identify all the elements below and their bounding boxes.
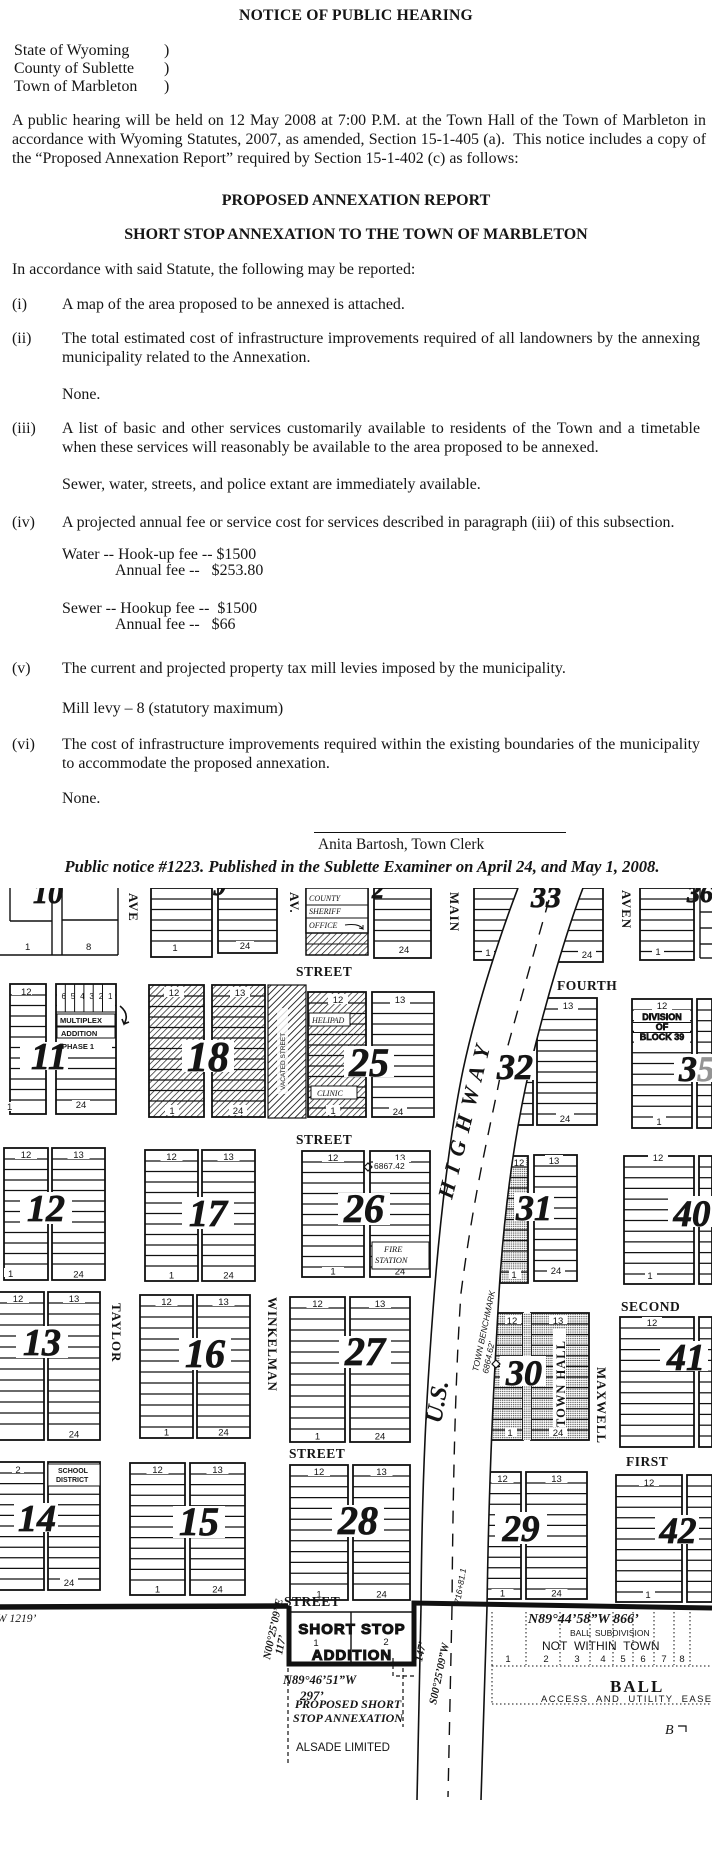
svg-text:13: 13	[23, 1322, 61, 1364]
svg-text:24: 24	[240, 941, 251, 952]
svg-text:1: 1	[315, 1432, 320, 1443]
svg-text:12: 12	[27, 1188, 65, 1230]
svg-text:1: 1	[500, 1589, 505, 1600]
svg-text:12: 12	[507, 1316, 518, 1327]
svg-text:1: 1	[172, 943, 177, 954]
svg-text:10: 10	[33, 888, 63, 910]
svg-text:COUNTY: COUNTY	[309, 894, 342, 903]
svg-text:SHORT STOP: SHORT STOP	[298, 1621, 405, 1638]
svg-text:MAIN: MAIN	[447, 892, 462, 932]
svg-text:1: 1	[108, 992, 113, 1001]
svg-text:24: 24	[218, 1428, 229, 1439]
svg-text:MAXWELL: MAXWELL	[594, 1367, 609, 1444]
svg-text:29: 29	[502, 1509, 540, 1550]
svg-text:12: 12	[644, 1478, 655, 1489]
svg-text:30: 30	[505, 1353, 542, 1393]
svg-text:13: 13	[563, 1001, 574, 1012]
svg-text:16: 16	[185, 1331, 225, 1376]
svg-text:SHERIFF: SHERIFF	[309, 907, 341, 916]
svg-text:FIRE: FIRE	[383, 1244, 403, 1254]
svg-text:24: 24	[76, 1100, 87, 1111]
svg-text:B: B	[665, 1723, 674, 1738]
svg-text:STREET: STREET	[296, 1132, 352, 1147]
svg-text:41: 41	[666, 1337, 705, 1379]
svg-text:13: 13	[69, 1294, 80, 1305]
svg-text:13: 13	[218, 1297, 229, 1308]
svg-text:CLINIC: CLINIC	[317, 1089, 343, 1098]
svg-text:OFFICE: OFFICE	[309, 921, 338, 930]
svg-text:DIVISION: DIVISION	[642, 1012, 682, 1022]
svg-text:27: 27	[344, 1329, 387, 1374]
svg-text:STREET: STREET	[296, 964, 352, 979]
svg-text:AV.: AV.	[287, 892, 302, 914]
svg-text:1: 1	[656, 1117, 661, 1128]
svg-text:13: 13	[395, 995, 406, 1006]
svg-text:FOURTH: FOURTH	[557, 978, 617, 993]
svg-text:8: 8	[86, 942, 91, 953]
svg-text:12: 12	[514, 1158, 525, 1169]
svg-text:DISTRICT: DISTRICT	[56, 1477, 89, 1484]
svg-text:6: 6	[640, 1654, 645, 1665]
svg-text:OF: OF	[656, 1022, 669, 1032]
svg-text:13: 13	[223, 1152, 234, 1163]
svg-text:24: 24	[212, 1585, 223, 1596]
svg-text:5: 5	[697, 1049, 712, 1089]
svg-text:24: 24	[73, 1270, 84, 1281]
svg-text:1: 1	[164, 1428, 169, 1439]
svg-text:AVE: AVE	[126, 893, 141, 922]
svg-text:1: 1	[511, 1270, 516, 1281]
svg-text:24: 24	[223, 1271, 234, 1282]
svg-text:N89°44’58”W 866’: N89°44’58”W 866’	[527, 1612, 639, 1627]
svg-text:24: 24	[376, 1590, 387, 1601]
svg-text:3: 3	[574, 1654, 579, 1665]
svg-text:3: 3	[89, 992, 94, 1001]
svg-text:12: 12	[21, 987, 32, 998]
svg-text:12: 12	[169, 988, 180, 999]
svg-text:6867.42: 6867.42	[374, 1161, 405, 1171]
svg-text:14: 14	[18, 1498, 56, 1540]
svg-text:AVEN: AVEN	[619, 890, 634, 929]
svg-text:13: 13	[376, 1467, 387, 1478]
svg-text:ACCESS AND UTILITY EASE: ACCESS AND UTILITY EASE	[541, 1694, 712, 1705]
svg-text:2: 2	[371, 888, 384, 904]
svg-text:7: 7	[661, 1654, 666, 1665]
svg-text:1: 1	[7, 1102, 12, 1113]
svg-text:12: 12	[653, 1153, 664, 1164]
svg-text:1: 1	[645, 1590, 650, 1601]
svg-text:17: 17	[189, 1193, 229, 1235]
svg-text:24: 24	[69, 1430, 80, 1441]
svg-text:12: 12	[152, 1465, 163, 1476]
svg-text:FIRST: FIRST	[626, 1454, 668, 1469]
svg-text:5: 5	[71, 992, 76, 1001]
svg-text:3: 3	[678, 1049, 697, 1089]
svg-text:24: 24	[551, 1266, 562, 1277]
svg-text:WINKELMAN: WINKELMAN	[265, 1297, 280, 1392]
svg-text:24: 24	[553, 1428, 564, 1439]
svg-text:4: 4	[80, 992, 85, 1001]
svg-text:5: 5	[620, 1654, 625, 1665]
svg-text:TOWN HALL: TOWN HALL	[554, 1340, 568, 1427]
svg-text:15: 15	[179, 1499, 219, 1544]
svg-text:STATION: STATION	[375, 1255, 409, 1265]
svg-text:4: 4	[600, 1654, 605, 1665]
svg-text:1: 1	[330, 1106, 335, 1117]
svg-text:1: 1	[655, 947, 660, 958]
svg-text:24: 24	[551, 1589, 562, 1600]
svg-text:12: 12	[312, 1299, 323, 1310]
svg-text:28: 28	[337, 1498, 378, 1543]
svg-text:STREET: STREET	[284, 1594, 340, 1609]
svg-text:18: 18	[187, 1035, 229, 1081]
svg-text:13: 13	[375, 1299, 386, 1310]
svg-text:12: 12	[166, 1152, 177, 1163]
svg-text:12: 12	[328, 1153, 339, 1164]
svg-text:1: 1	[647, 1271, 652, 1282]
svg-text:1: 1	[169, 1271, 174, 1282]
svg-text:STREET: STREET	[289, 1446, 345, 1461]
svg-text:24: 24	[375, 1432, 386, 1443]
svg-text:24: 24	[393, 1107, 404, 1118]
svg-text:13: 13	[551, 1474, 562, 1485]
svg-text:MULTIPLEX: MULTIPLEX	[60, 1016, 102, 1025]
svg-text:2: 2	[15, 1465, 20, 1476]
svg-text:BALL SUBDIVISION: BALL SUBDIVISION	[570, 1628, 650, 1638]
svg-text:40: 40	[673, 1194, 711, 1235]
svg-text:W 1219’: W 1219’	[0, 1613, 36, 1625]
svg-text:24: 24	[582, 950, 593, 961]
svg-text:13: 13	[73, 1150, 84, 1161]
svg-text:11: 11	[31, 1036, 67, 1078]
svg-text:12: 12	[161, 1297, 172, 1308]
svg-text:PROPOSED SHORTSTOP ANNEXATION: PROPOSED SHORTSTOP ANNEXATION	[293, 1697, 404, 1725]
svg-text:12: 12	[333, 995, 344, 1006]
svg-text:9: 9	[213, 888, 226, 901]
svg-text:32: 32	[496, 1047, 533, 1087]
svg-text:BLOCK 39: BLOCK 39	[640, 1032, 685, 1042]
svg-text:24: 24	[399, 945, 410, 956]
svg-text:13: 13	[235, 988, 246, 999]
svg-text:24: 24	[64, 1578, 75, 1589]
svg-text:2: 2	[543, 1654, 548, 1665]
svg-text:2: 2	[99, 992, 104, 1001]
svg-text:ALSADE LIMITED: ALSADE LIMITED	[296, 1742, 390, 1754]
svg-text:1: 1	[330, 1267, 335, 1278]
svg-text:26: 26	[343, 1186, 384, 1231]
svg-text:1: 1	[505, 1654, 510, 1665]
svg-text:1: 1	[485, 948, 490, 959]
svg-text:13: 13	[549, 1156, 560, 1167]
svg-text:24: 24	[233, 1106, 244, 1117]
svg-text:2: 2	[383, 1637, 388, 1648]
svg-text:ADDITION: ADDITION	[312, 1647, 393, 1664]
svg-text:12: 12	[13, 1294, 24, 1305]
svg-text:8: 8	[679, 1654, 684, 1665]
svg-text:SECOND: SECOND	[621, 1299, 680, 1314]
svg-text:33: 33	[530, 888, 561, 914]
svg-text:SCHOOL: SCHOOL	[58, 1468, 89, 1475]
svg-text:13: 13	[553, 1316, 564, 1327]
svg-text:12: 12	[21, 1150, 32, 1161]
svg-text:42: 42	[659, 1511, 697, 1552]
svg-text:12: 12	[647, 1318, 658, 1329]
svg-text:1: 1	[25, 942, 30, 953]
svg-text:VACATED STREET: VACATED STREET	[280, 1033, 287, 1090]
svg-text:25: 25	[348, 1040, 389, 1085]
svg-text:TAYLOR: TAYLOR	[109, 1303, 124, 1362]
svg-text:24: 24	[560, 1114, 571, 1125]
svg-text:6: 6	[62, 992, 67, 1001]
svg-text:1: 1	[155, 1585, 160, 1596]
svg-text:1: 1	[507, 1428, 512, 1439]
svg-text:N89°46’51”W: N89°46’51”W	[282, 1673, 357, 1687]
svg-text:12: 12	[314, 1467, 325, 1478]
svg-text:12: 12	[497, 1474, 508, 1485]
svg-text:13: 13	[212, 1465, 223, 1476]
svg-text:1: 1	[8, 1269, 13, 1280]
svg-text:HELIPAD: HELIPAD	[311, 1016, 345, 1025]
svg-text:1: 1	[313, 1638, 318, 1649]
svg-text:31: 31	[515, 1188, 552, 1228]
svg-text:1: 1	[169, 1106, 174, 1117]
svg-text:36: 36	[686, 888, 712, 908]
